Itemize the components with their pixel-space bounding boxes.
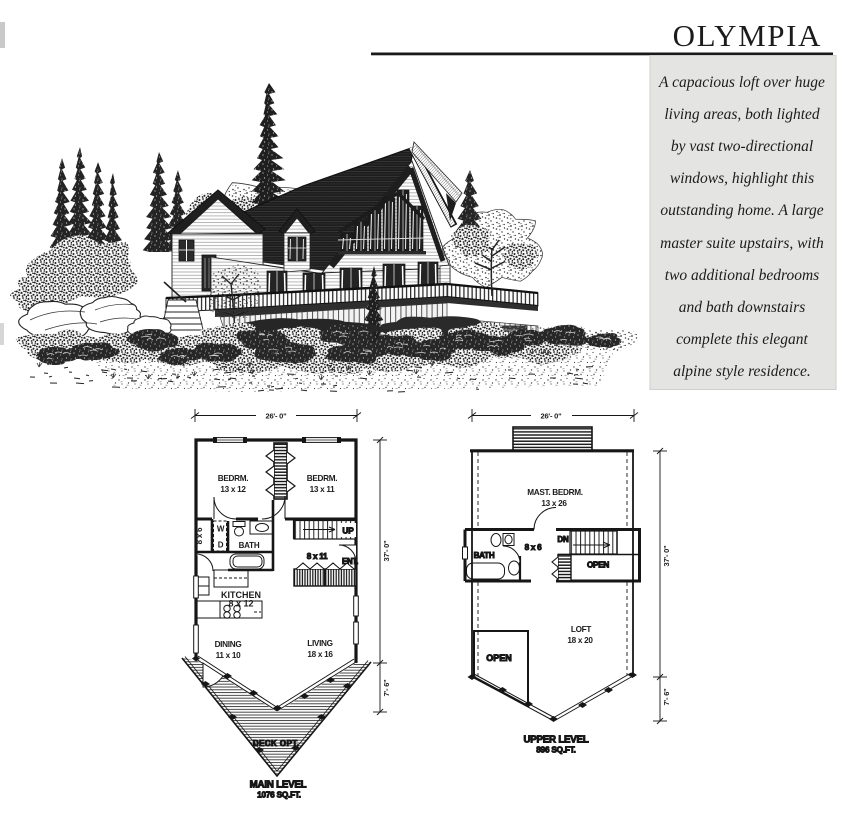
svg-text:A capacious loft over huge: A capacious loft over huge xyxy=(658,74,825,91)
svg-text:37'- 0": 37'- 0" xyxy=(662,545,671,567)
svg-text:7'- 6": 7'- 6" xyxy=(662,688,671,706)
svg-text:8 x 6: 8 x 6 xyxy=(525,543,542,552)
svg-text:26'- 0": 26'- 0" xyxy=(265,412,287,421)
svg-text:LIVING: LIVING xyxy=(307,639,333,648)
svg-text:and bath downstairs: and bath downstairs xyxy=(679,299,806,316)
svg-text:18 x 16: 18 x 16 xyxy=(307,650,333,659)
svg-text:37'- 0": 37'- 0" xyxy=(382,540,391,562)
svg-text:by vast two-directional: by vast two-directional xyxy=(671,138,813,155)
svg-text:two additional bedrooms: two additional bedrooms xyxy=(665,267,819,284)
svg-text:13 x 12: 13 x 12 xyxy=(220,485,246,494)
svg-text:7'- 6": 7'- 6" xyxy=(382,679,391,697)
svg-text:windows, highlight this: windows, highlight this xyxy=(670,170,814,187)
svg-text:OLYMPIA: OLYMPIA xyxy=(673,18,822,53)
svg-text:UPPER LEVEL: UPPER LEVEL xyxy=(523,735,588,746)
svg-text:DN: DN xyxy=(557,535,569,544)
svg-text:1076 SQ.FT.: 1076 SQ.FT. xyxy=(257,791,301,800)
svg-text:LOFT: LOFT xyxy=(571,625,591,634)
svg-text:26'- 0": 26'- 0" xyxy=(540,412,562,421)
svg-text:8 x 12: 8 x 12 xyxy=(228,599,253,609)
svg-text:11 x 10: 11 x 10 xyxy=(216,651,242,660)
svg-text:MAST. BEDRM.: MAST. BEDRM. xyxy=(527,488,583,497)
svg-text:DINING: DINING xyxy=(215,640,242,649)
svg-text:8 x 11: 8 x 11 xyxy=(307,552,328,561)
svg-text:master suite upstairs, with: master suite upstairs, with xyxy=(660,235,824,252)
svg-text:living areas, both lighted: living areas, both lighted xyxy=(664,106,820,123)
svg-text:DECK OPT.: DECK OPT. xyxy=(253,739,299,748)
svg-text:complete this elegant: complete this elegant xyxy=(676,331,808,348)
svg-text:13 x 26: 13 x 26 xyxy=(541,499,567,508)
svg-text:896 SQ.FT.: 896 SQ.FT. xyxy=(536,746,575,755)
svg-text:UP: UP xyxy=(342,527,354,536)
svg-text:BATH: BATH xyxy=(474,551,495,560)
svg-text:MAIN LEVEL: MAIN LEVEL xyxy=(250,780,307,791)
svg-text:8 x 6: 8 x 6 xyxy=(195,527,204,545)
svg-text:BEDRM.: BEDRM. xyxy=(307,474,338,483)
svg-text:W: W xyxy=(217,525,225,534)
svg-text:BEDRM.: BEDRM. xyxy=(218,474,249,483)
svg-text:outstanding home. A large: outstanding home. A large xyxy=(660,202,823,219)
svg-text:alpine style residence.: alpine style residence. xyxy=(673,363,811,380)
svg-text:18 x 20: 18 x 20 xyxy=(567,636,593,645)
svg-text:OPEN: OPEN xyxy=(486,653,512,663)
svg-text:13 x 11: 13 x 11 xyxy=(310,485,336,494)
svg-text:BATH: BATH xyxy=(239,541,260,550)
svg-text:D: D xyxy=(218,541,224,550)
svg-text:OPEN: OPEN xyxy=(587,561,609,570)
